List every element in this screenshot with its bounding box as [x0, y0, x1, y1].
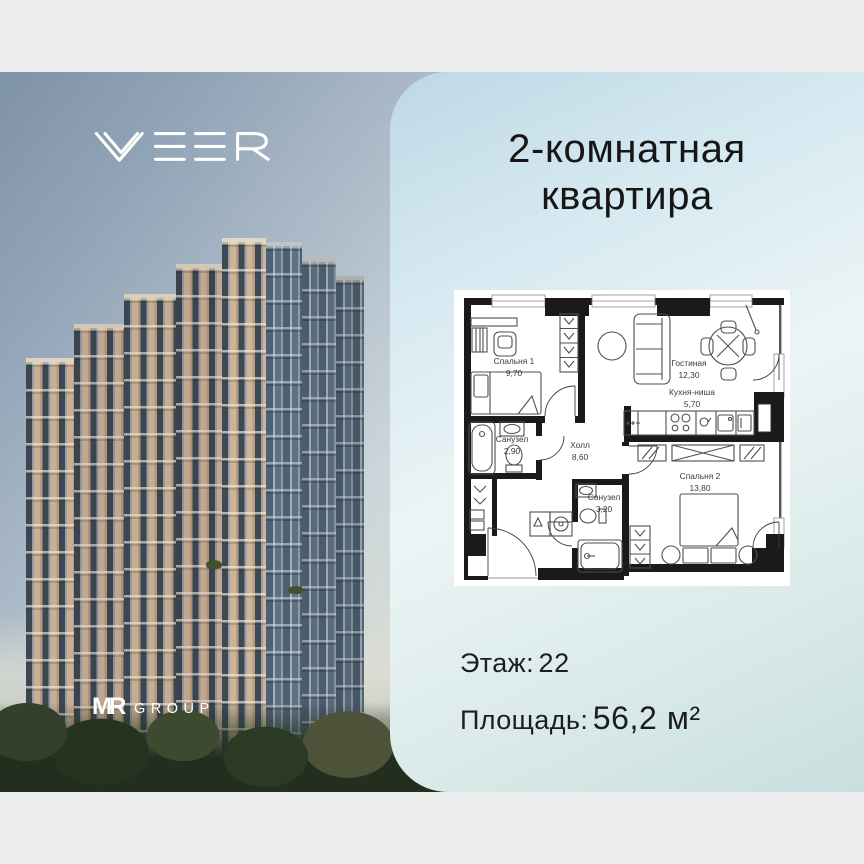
balcony-plant — [206, 560, 222, 569]
floor-value: 22 — [539, 648, 570, 678]
floor-row: Этаж: 22 — [460, 648, 570, 679]
info-panel: 2-комнатная квартира — [390, 72, 864, 792]
room-label: Спальня 1 — [494, 356, 535, 366]
top-margin-band — [0, 0, 864, 72]
room-label: Кухня-ниша — [669, 387, 715, 397]
room-label: Спальня 2 — [680, 471, 721, 481]
room-area: 2,90 — [504, 446, 521, 456]
area-label: Площадь: — [460, 705, 588, 735]
veer-e2 — [196, 134, 225, 160]
room-area: 13,80 — [690, 483, 711, 493]
room-label: Холл — [570, 440, 590, 450]
room-area: 5,70 — [684, 399, 701, 409]
balcony-plant — [288, 586, 303, 594]
area-row: Площадь: 56,2 м² — [460, 700, 701, 737]
room-area: 8,60 — [572, 452, 589, 462]
room-label: Гостиная — [671, 358, 706, 368]
area-value: 56,2 м² — [593, 700, 701, 736]
room-area: 12,30 — [679, 370, 700, 380]
veer-logo — [90, 124, 286, 166]
floor-plan-svg: Спальня 1 9,70 Гостиная 12,30 Кухня-ниша… — [452, 288, 792, 588]
mr-group-logo: MR GROUP — [92, 692, 262, 722]
bottom-margin-band — [0, 792, 864, 864]
title-line-1: 2-комнатная — [390, 126, 864, 173]
veer-r — [238, 134, 269, 160]
room-area: 9,70 — [506, 368, 523, 378]
listing-card: MR GROUP 2-комнатная квартира — [0, 0, 864, 864]
floor-plan: Спальня 1 9,70 Гостиная 12,30 Кухня-ниша… — [452, 288, 792, 588]
title-line-2: квартира — [390, 173, 864, 220]
group-logo-text: GROUP — [134, 701, 215, 717]
room-area: 3,20 — [596, 504, 613, 514]
mr-logo-text: MR — [92, 693, 126, 720]
floor-label: Этаж: — [460, 648, 534, 678]
room-label: Санузел — [496, 434, 529, 444]
stage: MR GROUP 2-комнатная квартира — [0, 72, 864, 792]
apartment-title: 2-комнатная квартира — [390, 126, 864, 220]
veer-e1 — [156, 134, 185, 160]
room-label: Санузел — [588, 492, 621, 502]
